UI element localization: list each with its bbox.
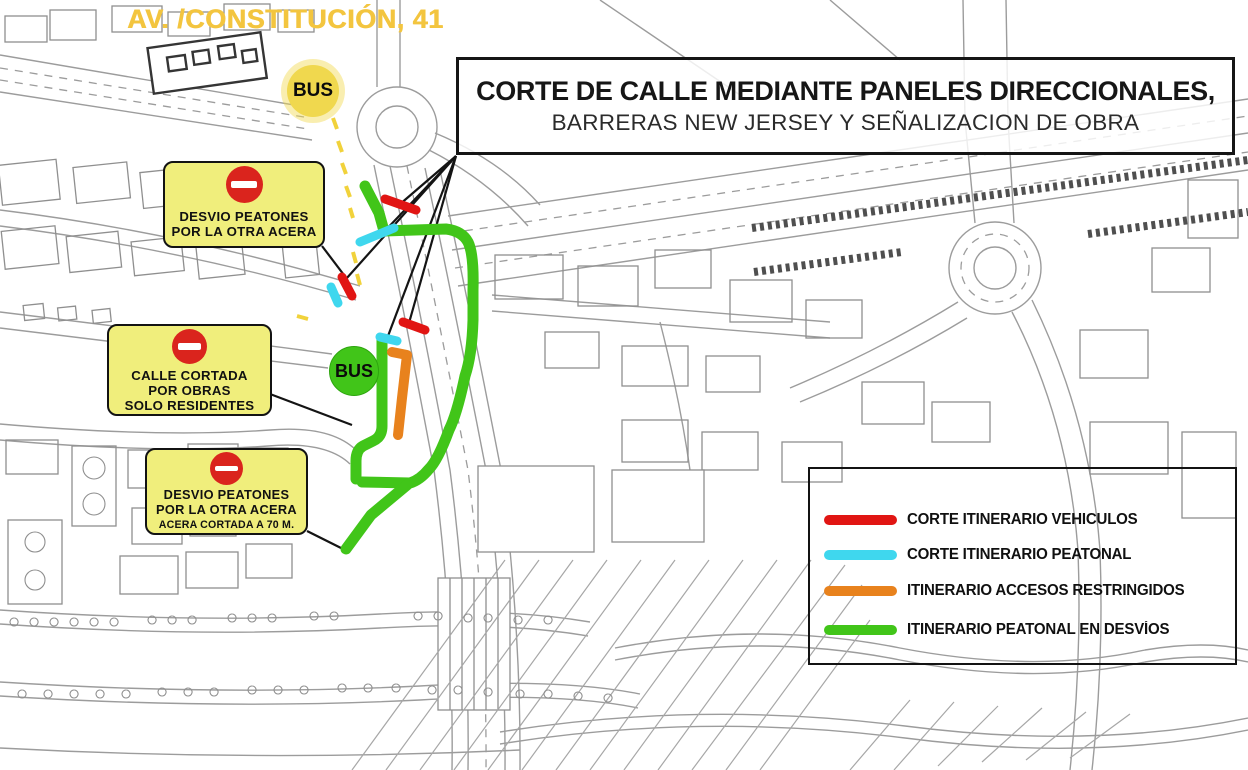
- plan-title-line1: CORTE DE CALLE MEDIANTE PANELES DIRECCIO…: [476, 76, 1215, 107]
- callout-desvio-peatones-north: DESVIO PEATONES POR LA OTRA ACERA: [163, 161, 325, 248]
- legend-item-accesos-restringidos: ITINERARIO ACCESOS RESTRINGIDOS: [810, 580, 1193, 602]
- callout-line: SOLO RESIDENTES: [125, 398, 255, 413]
- legend-item-corte-vehiculos: CORTE ITINERARIO VEHICULOS: [810, 509, 1145, 531]
- bus-stop-label: BUS: [335, 361, 373, 382]
- legend-label: CORTE ITINERARIO PEATONAL: [907, 546, 1131, 564]
- corte-peatonal-3: [380, 337, 397, 341]
- bus-stop-label: BUS: [293, 80, 333, 102]
- callout-line: DESVIO PEATONES: [171, 209, 316, 224]
- leader-line-callout-2: [270, 394, 352, 425]
- callout-line: POR LA OTRA ACERA: [156, 503, 297, 518]
- callout-desvio-peatones-south: DESVIO PEATONES POR LA OTRA ACERA ACERA …: [145, 448, 308, 535]
- legend-swatch-accesos-restringidos: [824, 586, 897, 596]
- legend-label: ITINERARIO ACCESOS RESTRINGIDOS: [907, 582, 1184, 600]
- callout-calle-cortada: CALLE CORTADA POR OBRAS SOLO RESIDENTES: [107, 324, 272, 416]
- traffic-plan-map: AV. /CONSTITUCIÓN, 41 CORTE DE CALLE MED…: [0, 0, 1248, 770]
- legend-swatch-corte-peatonal: [824, 550, 897, 560]
- legend-label: ITINERARIO PEATONAL EN DESVÍOS: [907, 621, 1169, 639]
- legend-item-corte-peatonal: CORTE ITINERARIO PEATONAL: [810, 544, 1138, 566]
- legend-swatch-corte-vehiculos: [824, 515, 897, 525]
- bus-stop-marker-north: BUS: [287, 65, 339, 117]
- plan-title-box: CORTE DE CALLE MEDIANTE PANELES DIRECCIO…: [456, 57, 1235, 155]
- callout-line: POR LA OTRA ACERA: [171, 224, 316, 239]
- callout-note: ACERA CORTADA A 70 M.: [159, 519, 294, 531]
- corte-vehiculos-2: [342, 277, 352, 296]
- plan-title-line2: BARRERAS NEW JERSEY Y SEÑALIZACION DE OB…: [552, 110, 1140, 136]
- street-address-label: AV. /CONSTITUCIÓN, 41: [127, 4, 444, 35]
- no-entry-icon: [226, 166, 263, 203]
- callout-line: POR OBRAS: [125, 383, 255, 398]
- route-accesos-restringidos: [392, 352, 407, 435]
- legend-swatch-peatonal-desvios: [824, 625, 897, 635]
- legend-label: CORTE ITINERARIO VEHICULOS: [907, 511, 1138, 529]
- legend-box: CORTE ITINERARIO VEHICULOS CORTE ITINERA…: [808, 467, 1237, 665]
- corte-vehiculos-1: [385, 199, 416, 210]
- callout-line: CALLE CORTADA: [125, 368, 255, 383]
- corte-vehiculos-3: [403, 322, 425, 330]
- corte-peatonal-2: [331, 287, 338, 303]
- bus-stop-marker-south: BUS: [329, 346, 379, 396]
- no-entry-icon: [210, 452, 243, 485]
- no-entry-icon: [172, 329, 207, 364]
- callout-line: DESVIO PEATONES: [156, 488, 297, 503]
- legend-item-peatonal-desvios: ITINERARIO PEATONAL EN DESVÍOS: [810, 619, 1177, 641]
- leader-line-title-5: [388, 156, 456, 336]
